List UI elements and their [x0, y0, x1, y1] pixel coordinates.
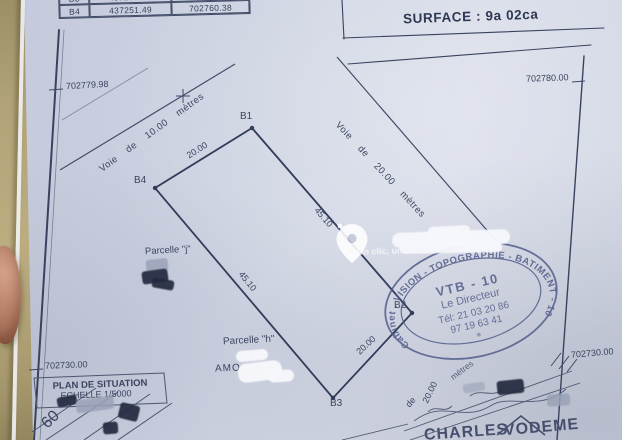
- photo-of-survey-plan: B3 437270.96 702725.40 B4 437251.49 7027…: [0, 0, 622, 440]
- watermark-caption: Un clic, un...: [357, 246, 410, 257]
- location-pin-icon: [337, 224, 368, 263]
- watermark-layer: [0, 0, 622, 440]
